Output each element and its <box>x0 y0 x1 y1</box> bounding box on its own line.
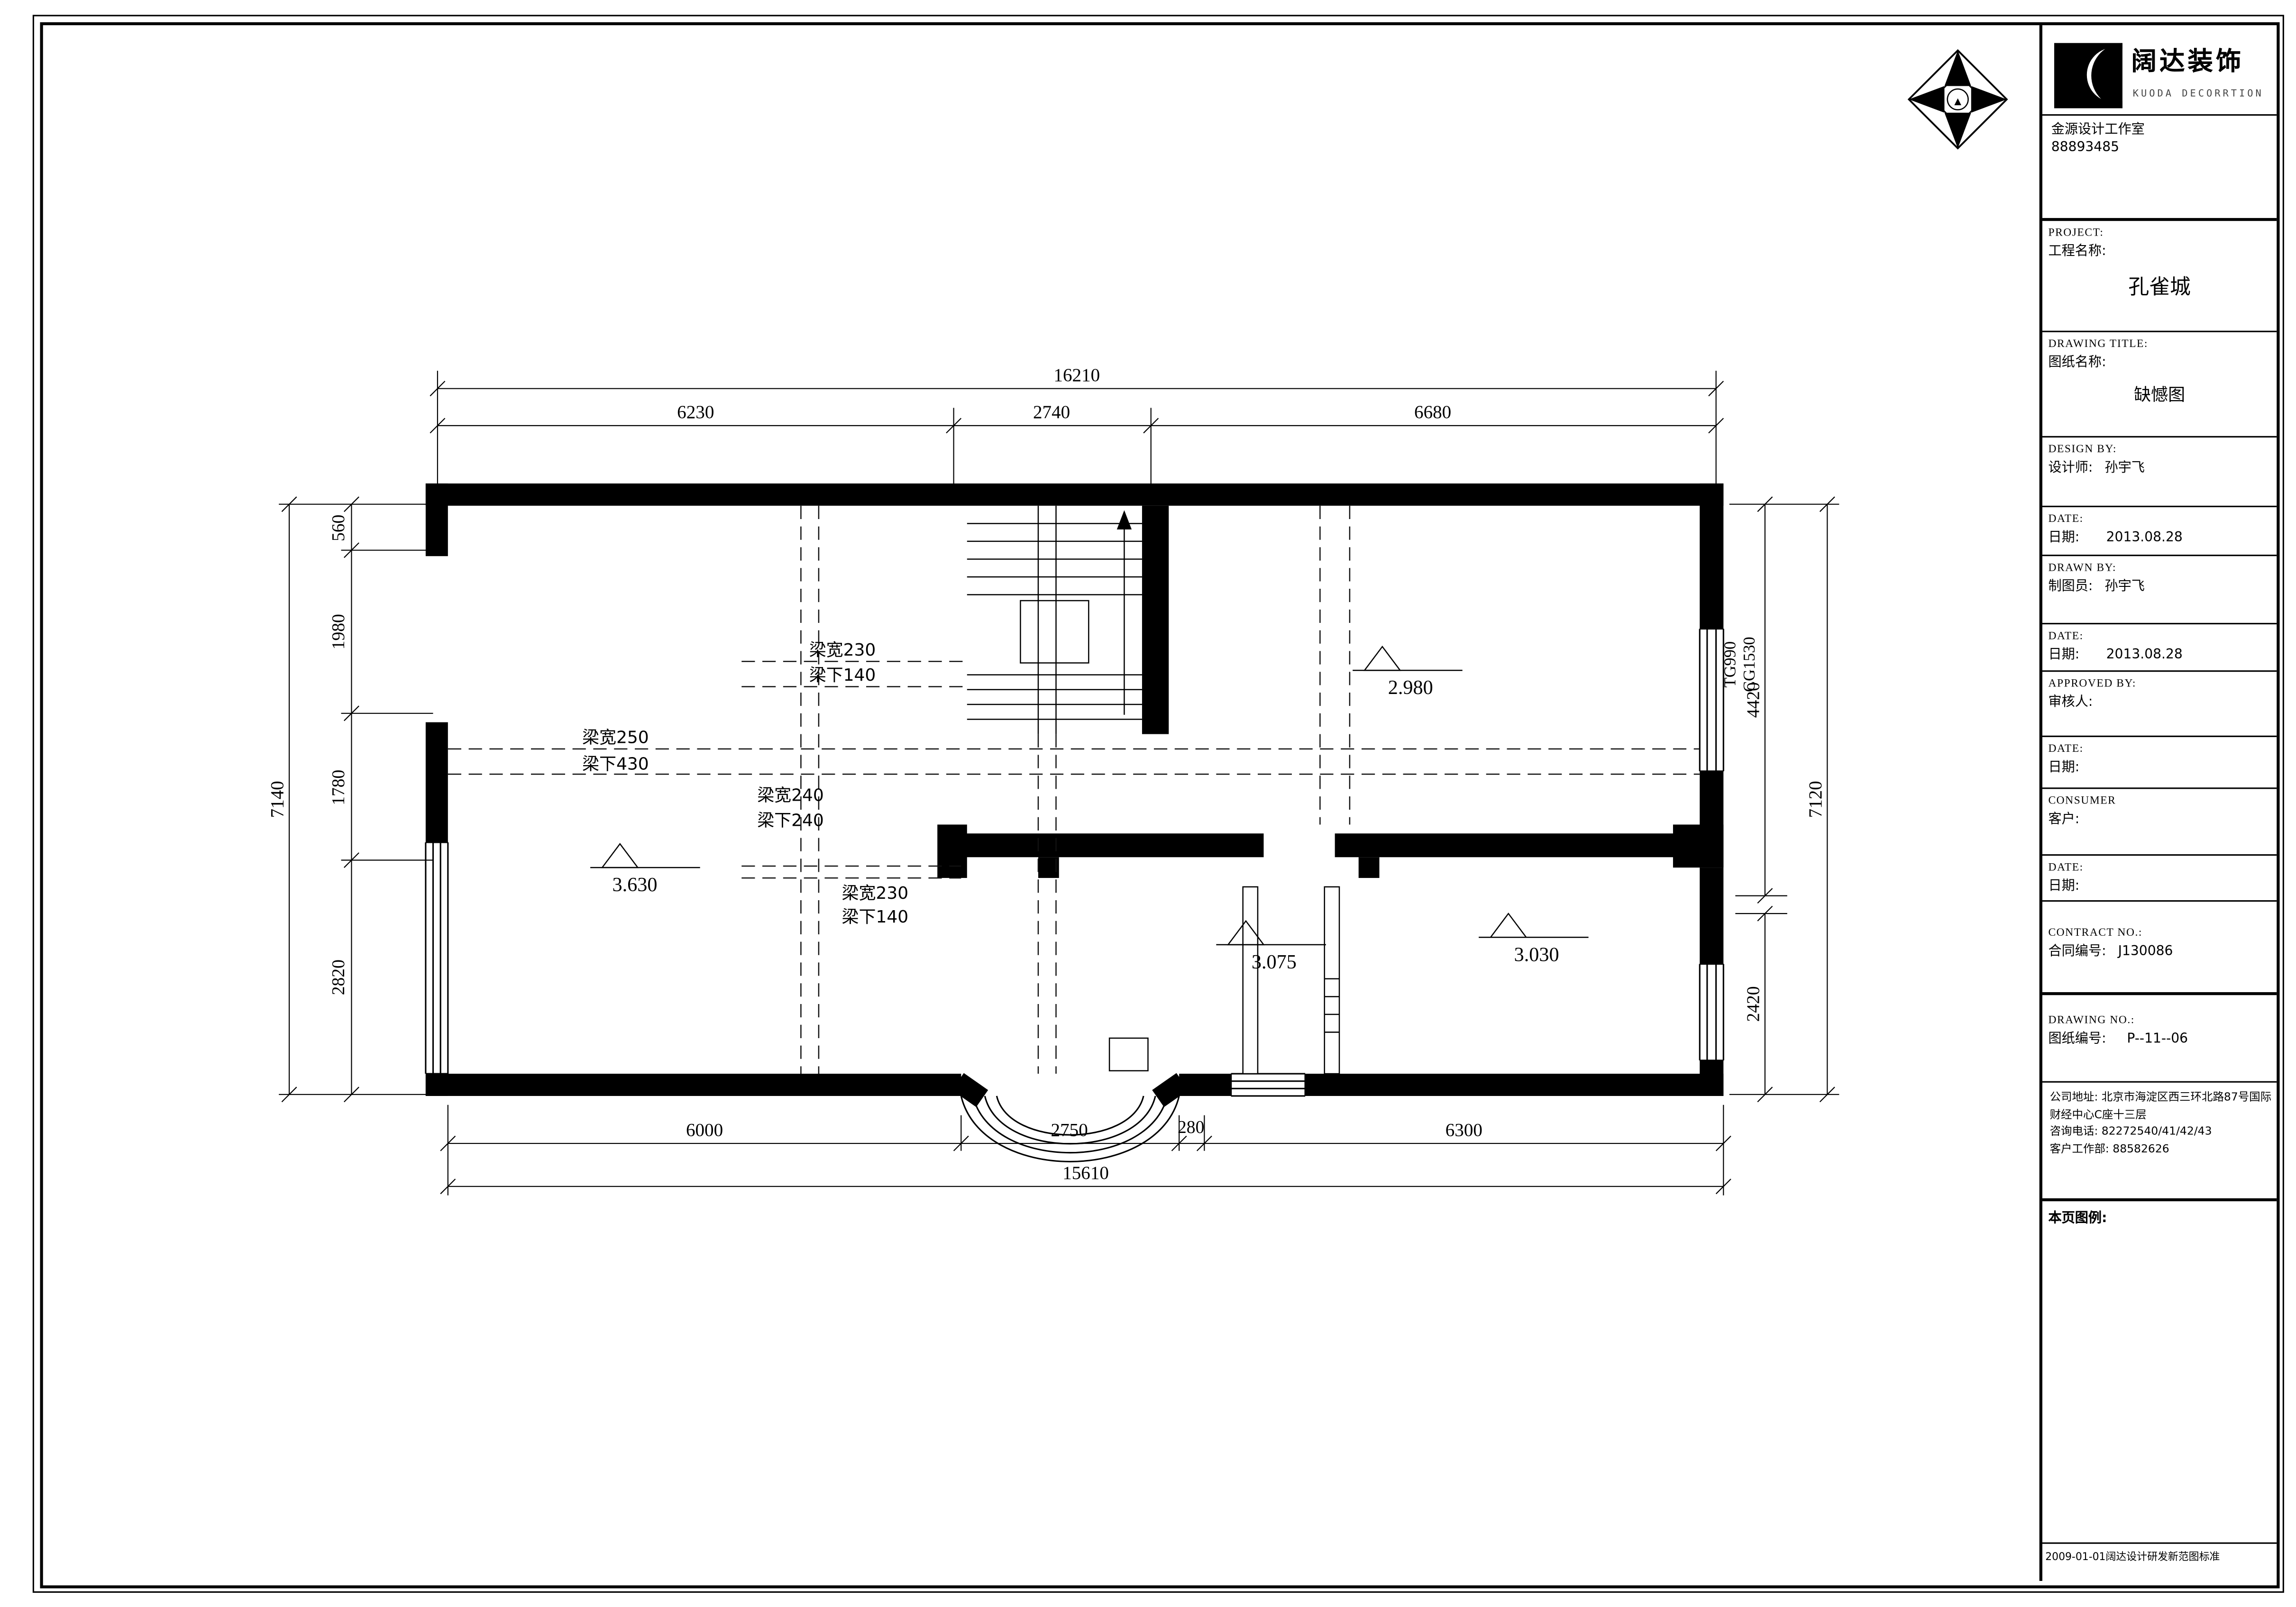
dim-value: 15610 <box>1062 1163 1109 1183</box>
north-arrow-glyph: ▲ <box>1952 95 1964 108</box>
window-bottom <box>1231 1074 1305 1096</box>
field-label-cn: 图纸编号:P--11--06 <box>2042 1026 2277 1047</box>
field-drawing-no: DRAWING NO.: 图纸编号:P--11--06 <box>2042 995 2277 1083</box>
field-label-cn: 审核人: <box>2042 690 2277 711</box>
level-value: 3.075 <box>1252 951 1297 973</box>
field-project: PROJECT: 工程名称: 孔雀城 <box>2042 221 2277 332</box>
level-value: 3.030 <box>1514 943 1559 966</box>
dim-value: 2740 <box>1033 402 1070 422</box>
field-design-by: DESIGN BY: 设计师:孙宇飞 <box>2042 438 2277 507</box>
beam-label: 梁宽230 <box>842 884 909 903</box>
beam-label: 梁下430 <box>582 755 649 774</box>
field-date-2: DATE: 日期:2013.08.28 <box>2042 624 2277 672</box>
field-label-en: DATE: <box>2042 856 2277 874</box>
field-date-1: DATE: 日期:2013.08.28 <box>2042 507 2277 556</box>
dim-value: 6000 <box>686 1120 723 1140</box>
drawing-number: P--11--06 <box>2127 1032 2188 1047</box>
field-label-en: PROJECT: <box>2042 221 2277 239</box>
standard-note: 2009-01-01阔达设计研发新范图标准 <box>2042 1543 2277 1581</box>
window-left <box>426 842 448 1074</box>
legend-section: 本页图例: <box>2042 1201 2277 1543</box>
field-label-en: DATE: <box>2042 507 2277 525</box>
dim-value: 6300 <box>1445 1120 1482 1140</box>
company-address: 公司地址: 北京市海淀区西三环北路87号国际 财经中心C座十三层 咨询电话: 8… <box>2042 1083 2277 1201</box>
drawing-sheet: ▲ <box>0 0 2296 1606</box>
dim-value: 7120 <box>1805 781 1826 818</box>
field-drawing-title: DRAWING TITLE: 图纸名称: 缺憾图 <box>2042 332 2277 438</box>
beam-label: 梁宽230 <box>809 640 876 660</box>
dim-value: 560 <box>329 515 348 541</box>
partition-details <box>1109 887 1339 1074</box>
dim-left-values: 7140 560 1980 1780 2820 <box>267 515 348 995</box>
window-right-lower <box>1700 964 1723 1060</box>
north-arrow-icon: ▲ <box>1909 50 2006 148</box>
dim-value: 1780 <box>329 770 348 805</box>
field-approved-by: APPROVED BY: 审核人: <box>2042 672 2277 737</box>
field-label-en: DRAWING TITLE: <box>2042 332 2277 350</box>
floor-plan: ▲ <box>0 0 2296 1606</box>
dim-value: 2820 <box>329 959 348 995</box>
studio-name: 金源设计工作室 <box>2042 116 2277 138</box>
field-contract-no: CONTRACT NO.: 合同编号:J130086 <box>2042 902 2277 995</box>
date-value: 2013.08.28 <box>2106 648 2183 663</box>
window-right-upper <box>1700 629 1723 771</box>
field-label-cn: 日期: <box>2042 874 2277 895</box>
field-label-cn: 日期:2013.08.28 <box>2042 525 2277 546</box>
dim-value: 16210 <box>1053 365 1100 385</box>
beam-label: 梁下140 <box>842 907 909 927</box>
field-label-cn: 客户: <box>2042 807 2277 828</box>
company-name-en: KUODA DECORRTION <box>2133 88 2264 100</box>
field-label-en: CONSUMER <box>2042 789 2277 807</box>
address-line: 财经中心C座十三层 <box>2050 1106 2272 1123</box>
title-block: 阔达装饰 KUODA DECORRTION 金源设计工作室 88893485 P… <box>2040 25 2277 1581</box>
drawing-title: 缺憾图 <box>2042 383 2277 406</box>
field-label-cn: 设计师:孙宇飞 <box>2042 455 2277 476</box>
address-line: 客户工作部: 88582626 <box>2050 1140 2272 1157</box>
field-label-cn: 日期: <box>2042 755 2277 776</box>
studio-phone: 88893485 <box>2042 138 2277 156</box>
dim-right-values: 4420 2420 7120 TG990 CG1530 <box>1721 637 1825 1022</box>
window-tag: TG990 <box>1721 641 1739 687</box>
dim-value: 6680 <box>1414 402 1451 422</box>
legend-label: 本页图例: <box>2042 1201 2277 1226</box>
field-label-en: DESIGN BY: <box>2042 438 2277 456</box>
dim-left <box>279 497 433 1102</box>
kuoda-logo-icon <box>2054 43 2122 109</box>
field-label-cn: 日期:2013.08.28 <box>2042 642 2277 663</box>
field-label-cn: 工程名称: <box>2042 239 2277 260</box>
title-block-logo: 阔达装饰 KUODA DECORRTION <box>2042 25 2277 116</box>
dim-value: 280 <box>1178 1118 1204 1137</box>
field-consumer: CONSUMER 客户: <box>2042 789 2277 856</box>
beam-label: 梁下140 <box>809 666 876 685</box>
beam-label: 梁宽240 <box>757 785 824 805</box>
address-line: 咨询电话: 82272540/41/42/43 <box>2050 1123 2272 1140</box>
dim-bottom-values: 6000 2750 280 6300 15610 <box>686 1118 1482 1183</box>
dim-value: 2420 <box>1744 986 1763 1022</box>
dim-top <box>430 371 1723 489</box>
dim-top-values: 16210 6230 2740 6680 <box>677 365 1451 422</box>
address-line: 公司地址: 北京市海淀区西三环北路87号国际 <box>2050 1088 2272 1105</box>
field-label-en: DATE: <box>2042 737 2277 755</box>
level-value: 2.980 <box>1388 676 1433 699</box>
field-label-en: DRAWN BY: <box>2042 556 2277 574</box>
staircase <box>967 506 1142 734</box>
dim-value: 2750 <box>1051 1120 1088 1140</box>
field-date-3: DATE: 日期: <box>2042 737 2277 789</box>
company-name: 阔达装饰 <box>2131 40 2244 77</box>
field-label-en: DRAWING NO.: <box>2042 995 2277 1026</box>
dim-value: 6230 <box>677 402 714 422</box>
date-value: 2013.08.28 <box>2106 531 2183 546</box>
level-marks <box>590 647 1588 945</box>
field-label-cn: 合同编号:J130086 <box>2042 939 2277 959</box>
field-label-cn: 制图员:孙宇飞 <box>2042 574 2277 595</box>
studio-info: 金源设计工作室 88893485 <box>2042 116 2277 221</box>
field-label-en: DATE: <box>2042 624 2277 642</box>
window-tag: CG1530 <box>1740 637 1758 692</box>
project-name: 孔雀城 <box>2042 272 2277 301</box>
field-label-en: CONTRACT NO.: <box>2042 902 2277 939</box>
field-date-4: DATE: 日期: <box>2042 856 2277 902</box>
beam-label: 梁下240 <box>757 811 824 831</box>
beam-dashed-lines <box>448 506 1700 1074</box>
field-drawn-by: DRAWN BY: 制图员:孙宇飞 <box>2042 556 2277 624</box>
beam-label: 梁宽250 <box>582 728 649 747</box>
draftsman-name: 孙宇飞 <box>2104 580 2145 594</box>
contract-number: J130086 <box>2118 945 2173 959</box>
dim-value: 7140 <box>267 781 288 818</box>
level-value: 3.630 <box>612 874 657 896</box>
designer-name: 孙宇飞 <box>2104 461 2145 476</box>
field-label-en: APPROVED BY: <box>2042 672 2277 690</box>
level-values: 3.630 2.980 3.075 3.030 <box>612 676 1559 973</box>
dim-value: 1980 <box>329 614 348 649</box>
field-label-cn: 图纸名称: <box>2042 350 2277 371</box>
